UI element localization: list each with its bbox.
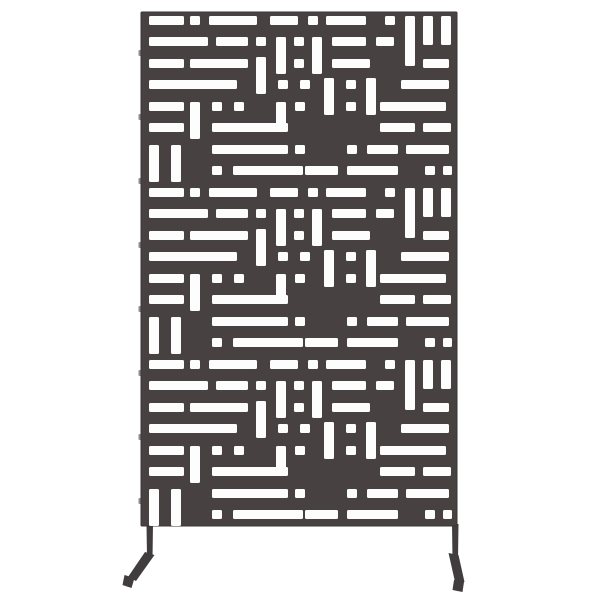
slot-cutout — [149, 59, 184, 68]
slot-cutout — [294, 381, 304, 390]
slot-cutout — [278, 424, 288, 433]
slot-cutout — [171, 145, 181, 182]
right-leg-tip — [453, 580, 465, 592]
slot-cutout — [295, 446, 305, 455]
slot-cutout — [366, 422, 376, 459]
slot-cutout — [149, 446, 184, 455]
slot-cutout — [278, 80, 288, 89]
slot-cutout — [324, 422, 334, 459]
slot-cutout — [149, 188, 184, 197]
slot-cutout — [376, 37, 394, 46]
slot-cutout — [149, 37, 208, 46]
slot-cutout — [441, 16, 451, 45]
slot-cutout — [149, 360, 184, 369]
slot-cutout — [212, 489, 288, 498]
slot-cutout — [149, 16, 184, 25]
slot-cutout — [190, 274, 200, 311]
slot-cutout — [149, 381, 208, 390]
slot-cutout — [385, 360, 395, 369]
slot-cutout — [212, 338, 222, 347]
slot-cutout — [347, 510, 398, 519]
slot-cutout — [326, 360, 366, 369]
slot-cutout — [423, 467, 451, 476]
slot-cutout — [332, 403, 370, 412]
slot-cutout — [149, 102, 184, 111]
slot-cutout — [423, 16, 433, 45]
slot-cutout — [305, 510, 338, 519]
slot-cutout — [190, 360, 200, 369]
slot-cutout — [308, 360, 318, 369]
slot-cutout — [346, 102, 356, 111]
slot-cutout — [326, 16, 366, 25]
slot-cutout — [401, 424, 449, 433]
slot-cutout — [366, 250, 376, 287]
slot-cutout — [347, 166, 398, 175]
slot-cutout — [190, 446, 200, 483]
slot-cutout — [295, 274, 305, 283]
slot-cutout — [425, 510, 435, 519]
slot-cutout — [234, 446, 244, 455]
slot-cutout — [294, 209, 304, 218]
slot-cutout — [212, 317, 288, 326]
slot-cutout — [423, 231, 449, 240]
slot-cutout — [209, 16, 257, 25]
slot-cutout — [423, 403, 449, 412]
slot-cutout — [171, 317, 181, 354]
slot-cutout — [216, 209, 248, 218]
slot-cutout — [212, 295, 288, 304]
slot-cutout — [300, 252, 310, 261]
slot-cutout — [171, 489, 181, 526]
slot-cutout — [376, 381, 394, 390]
slot-cutout — [406, 317, 449, 326]
slot-cutout — [212, 102, 222, 111]
slot-cutout — [149, 424, 237, 433]
slot-cutout — [295, 145, 305, 154]
slot-cutout — [256, 229, 266, 266]
slot-cutout — [300, 424, 310, 433]
slot-cutout — [295, 317, 305, 326]
slot-cutout — [270, 16, 298, 25]
slot-cutout — [346, 80, 356, 89]
slot-cutout — [308, 188, 318, 197]
slot-cutout — [212, 510, 222, 519]
slot-cutout — [312, 381, 322, 418]
slot-cutout — [346, 274, 356, 283]
slot-cutout — [295, 102, 305, 111]
slot-cutout — [425, 338, 435, 347]
slot-cutout — [190, 59, 248, 68]
slot-cutout — [149, 403, 184, 412]
slot-cutout — [190, 231, 248, 240]
slot-cutout — [149, 489, 159, 526]
slot-cutout — [324, 250, 334, 287]
slot-cutout — [425, 166, 435, 175]
slot-cutout — [423, 59, 449, 68]
slot-cutout — [295, 489, 305, 498]
slot-cutout — [406, 489, 449, 498]
slot-cutout — [149, 295, 184, 304]
slot-cutout — [276, 209, 286, 246]
slot-cutout — [305, 166, 338, 175]
slot-cutout — [332, 209, 366, 218]
slot-cutout — [190, 188, 200, 197]
slot-cutout — [347, 338, 398, 347]
slot-cutout — [149, 317, 159, 354]
slot-cutout — [294, 231, 304, 240]
slot-cutout — [443, 510, 452, 519]
slot-cutout — [234, 102, 244, 111]
slot-cutout — [300, 80, 310, 89]
slot-cutout — [347, 317, 357, 326]
slot-cutout — [423, 188, 433, 217]
slot-cutout — [149, 80, 237, 89]
slot-cutout — [270, 360, 298, 369]
slot-cutout — [190, 102, 200, 139]
slot-cutout — [347, 489, 357, 498]
slot-cutout — [406, 145, 449, 154]
slot-cutout — [443, 166, 452, 175]
slot-cutout — [149, 123, 184, 132]
slot-cutout — [149, 467, 184, 476]
slot-cutout — [441, 188, 451, 217]
slot-cutout — [441, 360, 451, 389]
slot-cutout — [401, 80, 449, 89]
privacy-screen-image — [0, 0, 600, 600]
slot-cutout — [405, 360, 415, 410]
slot-cutout — [216, 381, 248, 390]
slot-cutout — [380, 446, 446, 455]
slot-cutout — [190, 403, 248, 412]
slot-cutout — [376, 209, 394, 218]
slot-cutout — [326, 188, 366, 197]
slot-cutout — [256, 401, 266, 438]
slot-cutout — [367, 145, 398, 154]
slot-cutout — [312, 37, 322, 74]
slot-cutout — [443, 338, 452, 347]
slot-cutout — [423, 360, 433, 389]
slot-cutout — [294, 37, 304, 46]
slot-cutout — [346, 424, 356, 433]
slot-cutout — [405, 188, 415, 238]
slot-cutout — [305, 338, 338, 347]
slot-cutout — [294, 403, 304, 412]
slot-cutout — [212, 446, 222, 455]
slot-cutout — [366, 78, 376, 115]
product-photo-canvas — [0, 0, 600, 600]
slot-cutout — [367, 489, 398, 498]
slot-cutout — [233, 338, 303, 347]
slot-cutout — [256, 381, 266, 390]
slot-cutout — [209, 360, 257, 369]
slot-cutout — [423, 123, 451, 132]
slot-cutout — [212, 123, 288, 132]
slot-cutout — [380, 123, 415, 132]
slot-cutout — [256, 57, 266, 94]
slot-cutout — [209, 188, 257, 197]
slot-cutout — [380, 274, 446, 283]
slot-cutout — [380, 102, 446, 111]
slot-cutout — [278, 252, 288, 261]
slot-cutout — [347, 145, 357, 154]
right-leg-post — [452, 524, 459, 558]
slot-cutout — [149, 209, 208, 218]
slot-cutout — [405, 16, 415, 66]
slot-cutout — [276, 37, 286, 74]
slot-cutout — [212, 274, 222, 283]
slot-cutout — [270, 188, 298, 197]
slot-cutout — [312, 209, 322, 246]
slot-cutout — [212, 166, 222, 175]
slot-cutout — [332, 231, 370, 240]
slot-cutout — [346, 446, 356, 455]
slot-cutout — [233, 166, 303, 175]
slot-cutout — [294, 59, 304, 68]
slot-cutout — [332, 59, 370, 68]
slot-cutout — [308, 16, 318, 25]
slot-cutout — [256, 37, 266, 46]
slot-cutout — [380, 467, 415, 476]
slot-cutout — [149, 252, 237, 261]
slot-cutout — [423, 295, 451, 304]
slot-cutout — [276, 381, 286, 418]
slot-cutout — [216, 37, 248, 46]
slot-cutout — [256, 209, 266, 218]
slot-cutout — [385, 188, 395, 197]
slot-cutout — [346, 252, 356, 261]
slot-cutout — [149, 274, 184, 283]
slot-cutout — [149, 145, 159, 182]
slot-cutout — [367, 317, 398, 326]
slot-cutout — [332, 381, 366, 390]
slot-cutout — [332, 37, 366, 46]
slot-cutout — [380, 295, 415, 304]
slot-cutout — [324, 78, 334, 115]
slot-cutout — [149, 231, 184, 240]
slot-cutout — [212, 467, 288, 476]
slot-cutout — [234, 274, 244, 283]
slot-cutout — [190, 16, 200, 25]
slot-cutout — [401, 252, 449, 261]
slot-cutout — [385, 16, 395, 25]
slot-cutout — [233, 510, 303, 519]
slot-cutout — [212, 145, 288, 154]
